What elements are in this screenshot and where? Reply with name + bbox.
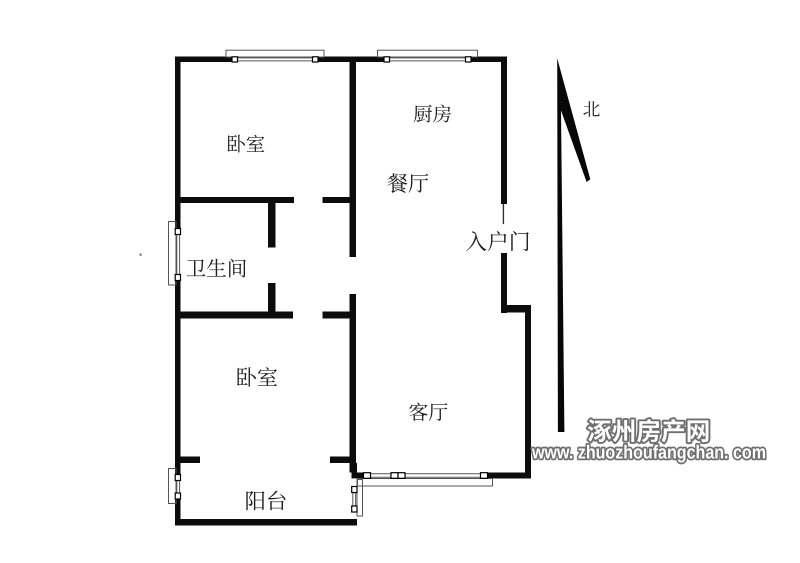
svg-text:www. zhuozhoufangchan. com: www. zhuozhoufangchan. com: [531, 442, 766, 463]
